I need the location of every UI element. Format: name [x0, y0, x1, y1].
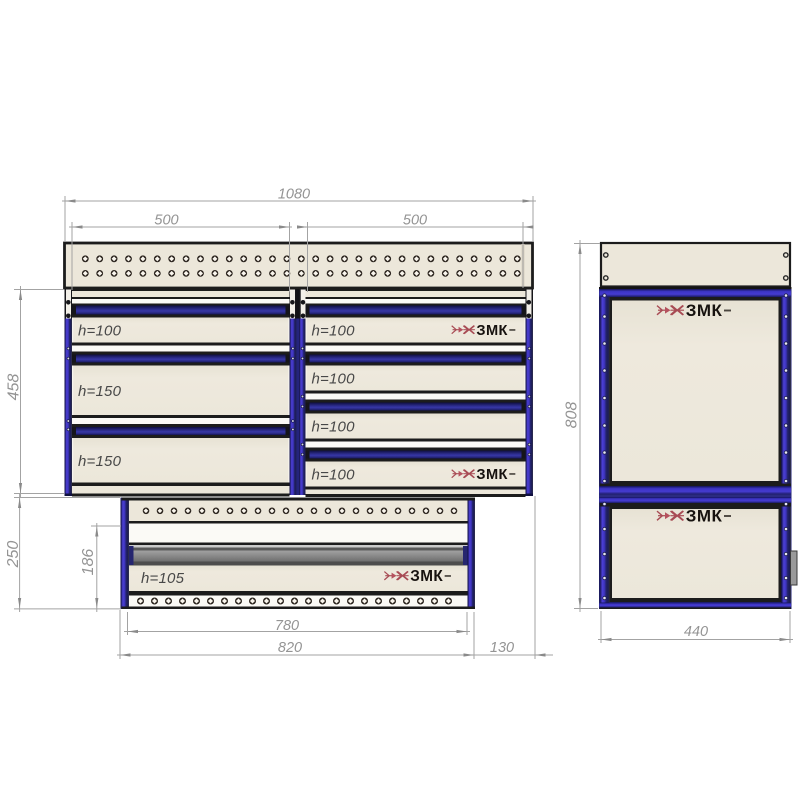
svg-text:h=150: h=150 [78, 383, 122, 400]
svg-text:500: 500 [154, 213, 178, 229]
svg-text:h=150: h=150 [78, 453, 122, 470]
svg-text:h=105: h=105 [141, 570, 185, 587]
svg-text:250: 250 [5, 541, 22, 569]
svg-text:h=100: h=100 [312, 467, 356, 484]
svg-text:h=100: h=100 [312, 371, 356, 388]
svg-text:458: 458 [6, 374, 23, 401]
svg-text:440: 440 [684, 624, 708, 640]
svg-text:500: 500 [403, 213, 427, 229]
svg-text:130: 130 [490, 640, 514, 656]
svg-text:h=100: h=100 [312, 419, 356, 436]
svg-text:186: 186 [80, 549, 97, 576]
svg-text:808: 808 [564, 402, 581, 429]
svg-text:h=100: h=100 [312, 323, 356, 340]
svg-text:780: 780 [275, 618, 299, 634]
svg-text:820: 820 [278, 640, 302, 656]
svg-text:h=100: h=100 [78, 323, 122, 340]
svg-text:1080: 1080 [278, 187, 310, 203]
